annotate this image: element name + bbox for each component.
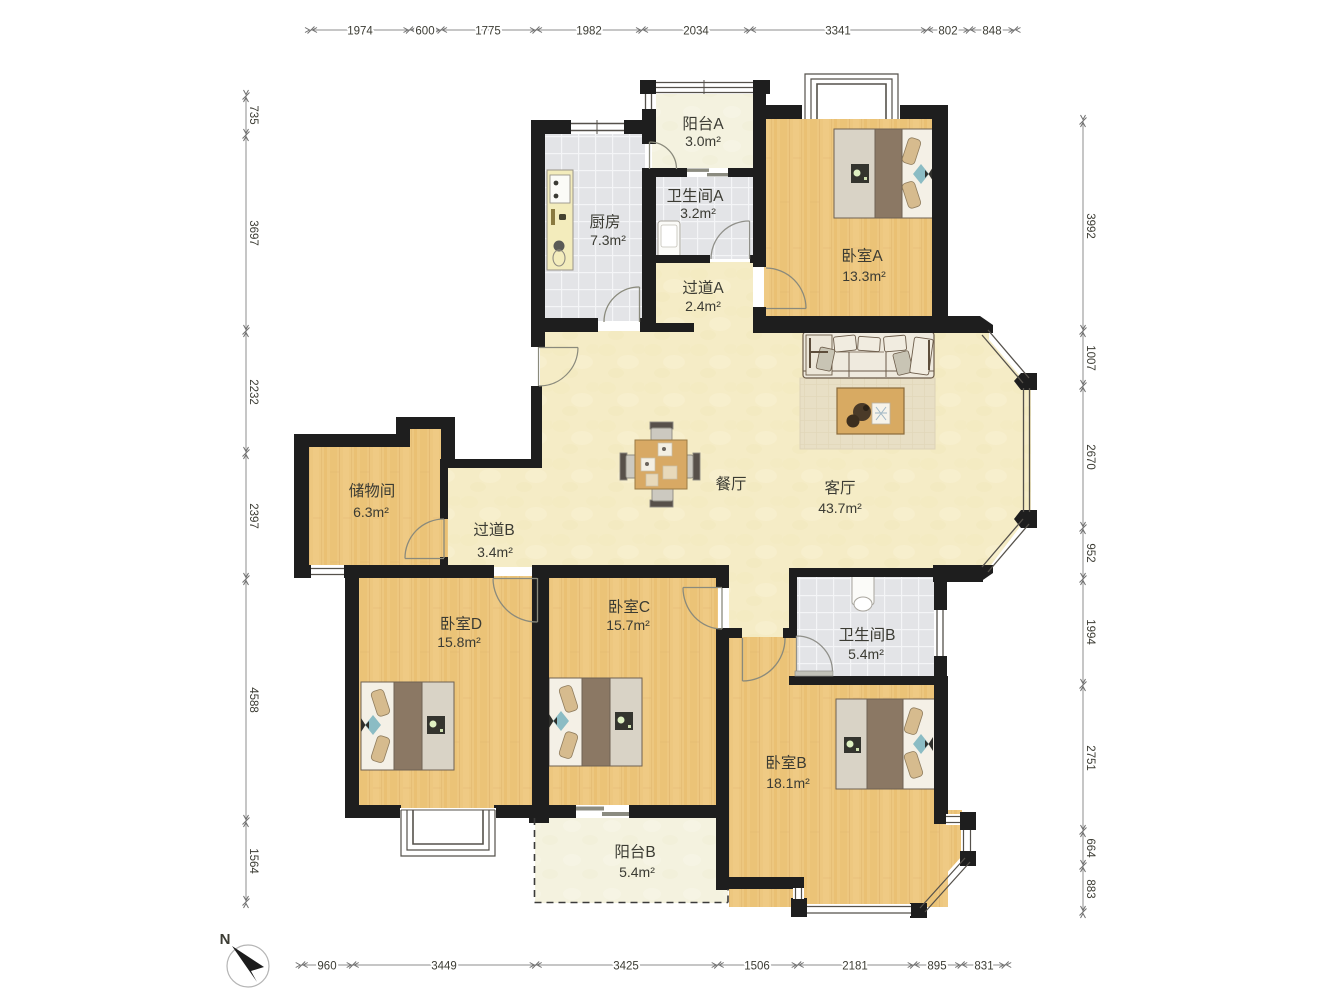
- svg-text:1007: 1007: [1084, 345, 1096, 371]
- svg-text:3.2m²: 3.2m²: [680, 205, 716, 221]
- svg-text:3992: 3992: [1084, 213, 1096, 239]
- svg-text:735: 735: [247, 105, 259, 124]
- svg-text:2670: 2670: [1084, 444, 1096, 470]
- svg-text:2232: 2232: [247, 379, 259, 405]
- svg-text:过道B: 过道B: [473, 521, 514, 539]
- svg-text:5.4m²: 5.4m²: [848, 646, 884, 662]
- svg-text:卫生间A: 卫生间A: [667, 187, 725, 205]
- svg-text:952: 952: [1084, 543, 1096, 562]
- svg-text:储物间: 储物间: [349, 482, 396, 500]
- svg-text:3.0m²: 3.0m²: [685, 133, 721, 149]
- svg-text:1994: 1994: [1084, 619, 1096, 645]
- svg-text:18.1m²: 18.1m²: [766, 775, 810, 791]
- svg-text:2034: 2034: [683, 26, 709, 38]
- svg-text:960: 960: [317, 961, 336, 973]
- svg-text:2181: 2181: [842, 961, 868, 973]
- svg-text:831: 831: [974, 961, 993, 973]
- svg-text:餐厅: 餐厅: [715, 475, 746, 493]
- svg-text:600: 600: [415, 26, 434, 38]
- svg-text:卧室D: 卧室D: [440, 615, 482, 633]
- svg-text:阳台A: 阳台A: [682, 115, 724, 133]
- svg-text:3341: 3341: [825, 26, 851, 38]
- svg-text:13.3m²: 13.3m²: [842, 268, 886, 284]
- svg-text:6.3m²: 6.3m²: [353, 504, 389, 520]
- svg-text:664: 664: [1084, 838, 1096, 858]
- svg-text:3425: 3425: [613, 961, 639, 973]
- svg-text:5.4m²: 5.4m²: [619, 864, 655, 880]
- svg-text:1982: 1982: [576, 26, 602, 38]
- svg-text:848: 848: [982, 26, 1001, 38]
- svg-text:3.4m²: 3.4m²: [477, 544, 513, 560]
- svg-text:卧室C: 卧室C: [608, 598, 650, 616]
- svg-text:1775: 1775: [475, 26, 501, 38]
- svg-text:2397: 2397: [247, 503, 259, 529]
- svg-text:1506: 1506: [744, 961, 770, 973]
- svg-text:43.7m²: 43.7m²: [818, 500, 862, 516]
- svg-text:阳台B: 阳台B: [614, 843, 655, 861]
- svg-text:N: N: [220, 931, 231, 948]
- svg-text:802: 802: [938, 26, 957, 38]
- svg-text:15.7m²: 15.7m²: [606, 617, 650, 633]
- svg-text:卫生间B: 卫生间B: [839, 626, 896, 644]
- svg-text:1974: 1974: [347, 26, 373, 38]
- svg-text:卧室B: 卧室B: [765, 754, 806, 772]
- svg-text:2.4m²: 2.4m²: [685, 298, 721, 314]
- svg-text:厨房: 厨房: [589, 213, 620, 231]
- svg-text:3697: 3697: [247, 220, 259, 246]
- svg-text:2751: 2751: [1084, 745, 1096, 771]
- svg-text:7.3m²: 7.3m²: [590, 232, 626, 248]
- svg-text:过道A: 过道A: [682, 279, 724, 297]
- svg-text:4588: 4588: [247, 687, 259, 713]
- svg-text:883: 883: [1084, 879, 1096, 898]
- svg-text:卧室A: 卧室A: [841, 247, 883, 265]
- svg-text:895: 895: [927, 961, 946, 973]
- svg-text:客厅: 客厅: [824, 479, 855, 497]
- svg-text:3449: 3449: [431, 961, 457, 973]
- svg-text:1564: 1564: [247, 848, 259, 874]
- svg-text:15.8m²: 15.8m²: [437, 634, 481, 650]
